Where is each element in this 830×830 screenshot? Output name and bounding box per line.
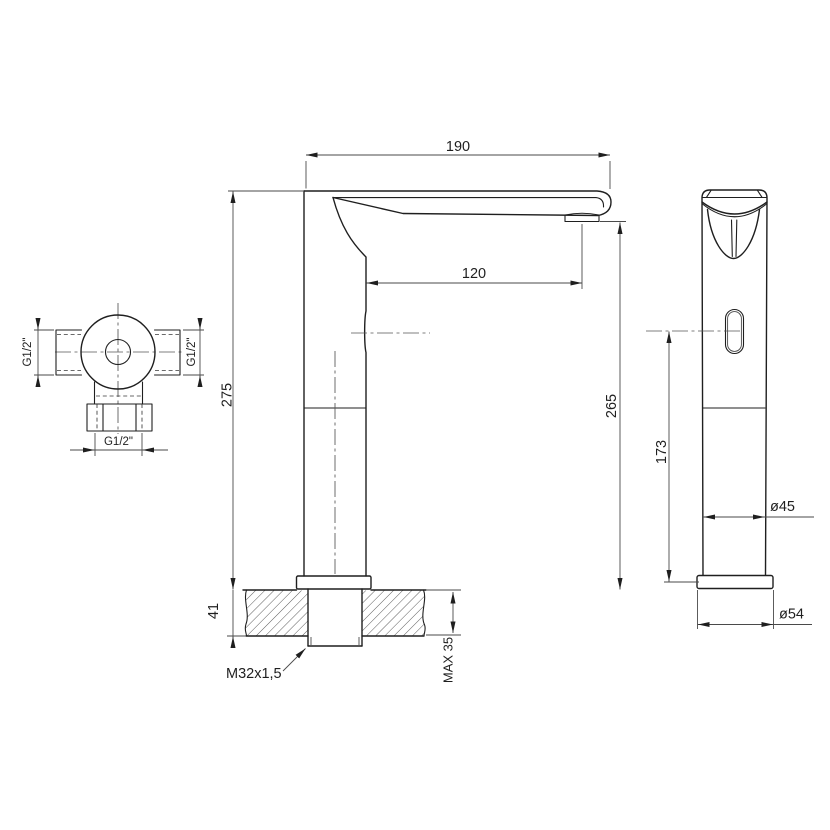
sensor-window [726, 310, 744, 354]
base-flange-front [697, 576, 773, 589]
spout-lip-arc [702, 202, 767, 214]
column-right-edge [333, 198, 366, 577]
dim-base-diameter: ø54 [698, 590, 813, 629]
right-port [155, 330, 181, 375]
dim-spout-width: 190 [306, 139, 610, 189]
height-total-label: 275 [220, 383, 236, 407]
dim-sensor-height: 173 [654, 332, 699, 583]
dim-body-diameter: ø45 [703, 499, 814, 517]
dim-right-port: G1/2" [183, 319, 204, 387]
drawing-page: G1/2" G1/2" G1/2" [0, 0, 830, 830]
base-flange-side [297, 576, 372, 589]
front-view: 173 ø45 ø54 [646, 190, 814, 629]
height-outlet-label: 265 [604, 394, 620, 418]
aerator-outlet [565, 213, 599, 221]
dim-spout-reach: 120 [367, 224, 583, 289]
dim-deck-section: 41 [206, 590, 246, 648]
thread-label: M32x1,5 [226, 666, 282, 682]
sensor-height-label: 173 [654, 440, 670, 464]
side-view: 190 120 275 265 41 [206, 139, 626, 683]
left-port [56, 330, 82, 375]
bottom-port-label: G1/2" [104, 436, 133, 448]
countertop-section [243, 590, 426, 636]
base-diameter-label: ø54 [779, 607, 804, 623]
threaded-shank [308, 589, 362, 646]
technical-drawing: G1/2" G1/2" G1/2" [0, 0, 830, 830]
spout-reach-label: 120 [462, 266, 486, 282]
thread-callout: M32x1,5 [226, 649, 306, 683]
spout-profile [304, 191, 611, 216]
top-view: G1/2" G1/2" G1/2" [22, 303, 204, 456]
dim-height-outlet: 265 [600, 222, 626, 590]
max-deck-label: MAX 35 [441, 637, 456, 683]
spout-width-label: 190 [446, 139, 470, 155]
dim-bottom-port: G1/2" [70, 433, 168, 456]
dim-max-deck: MAX 35 [426, 590, 461, 683]
deck-section-label: 41 [206, 603, 222, 619]
right-port-label: G1/2" [186, 337, 198, 366]
dim-height-total: 275 [220, 191, 304, 590]
left-port-label: G1/2" [22, 337, 34, 366]
body-diameter-label: ø45 [770, 499, 795, 515]
dim-left-port: G1/2" [22, 319, 54, 387]
